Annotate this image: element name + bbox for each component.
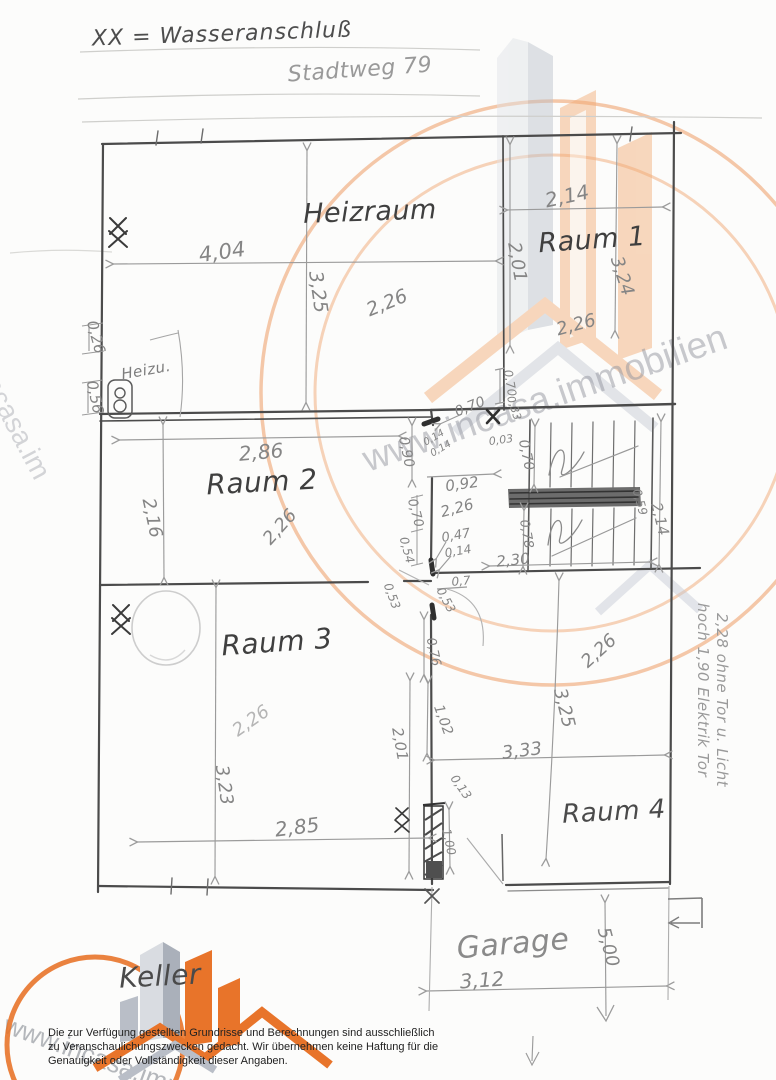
disclaimer-line: Genauigkeit oder Vollständigkeit dieser …: [48, 1054, 488, 1068]
room-label-raum-4: Raum 4: [561, 794, 666, 829]
chimney-hatched: [423, 803, 503, 884]
room-label-heizraum: Heizraum: [303, 194, 438, 230]
dimension-label: 2,30: [495, 549, 530, 570]
water-connection-x-marks: [109, 218, 439, 903]
disclaimer-text: Die zur Verfügung gestellten Grundrisse …: [48, 1026, 488, 1068]
disclaimer-line: Die zur Verfügung gestellten Grundrisse …: [48, 1026, 488, 1040]
floorplan-scan-page: www.incasa.immobilien www.incasa.im www.…: [0, 0, 776, 1080]
dimension-label: 2,86: [238, 438, 284, 466]
pencil-circle: [132, 591, 200, 665]
dimension-label: 3,12: [459, 966, 505, 993]
room-label-keller: Keller: [118, 957, 202, 994]
watermark-url-left: www.incasa.im: [0, 305, 57, 484]
side-note-line1: hoch 1,90 Elektrik Tor: [694, 603, 712, 777]
side-note-line2: 2,28 ohne Tor u. Licht: [713, 613, 731, 787]
dimension-label: 0,7: [451, 573, 471, 589]
floorplan-sketch: www.incasa.immobilien www.incasa.im www.…: [0, 0, 776, 1080]
disclaimer-line: zu Veranschaulichungszwecken gedacht. Wi…: [48, 1040, 488, 1054]
room-label-raum-2: Raum 2: [206, 463, 319, 502]
